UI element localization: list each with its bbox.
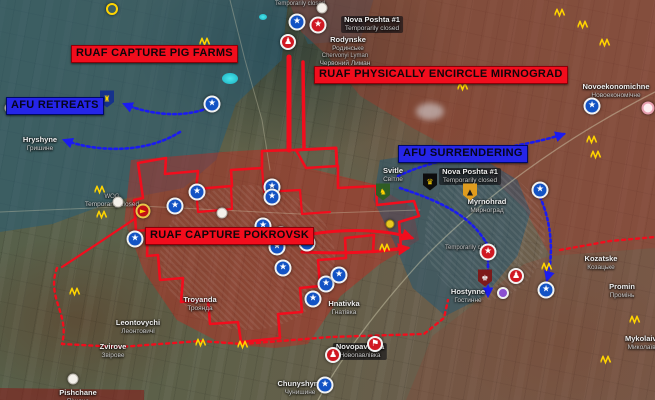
town-name-cyrillic: Гнатівка xyxy=(328,309,359,316)
town-label: Kozatske Козацьке xyxy=(585,255,618,271)
closed-white-marker[interactable] xyxy=(68,374,79,385)
trench-marker xyxy=(238,341,249,350)
town-name: Kozatske xyxy=(585,254,618,263)
star-blue-marker[interactable]: ★ xyxy=(264,189,281,206)
purple-marker[interactable] xyxy=(497,287,509,299)
trench-marker xyxy=(95,186,106,195)
banner-afu-surrendering: AFU SURRENDERING xyxy=(398,145,528,163)
town-name: Pishchane xyxy=(59,388,97,397)
town-label: Nova Poshta #1 Temporarily closed xyxy=(439,168,501,185)
town-name-cyrillic: Родинське xyxy=(330,45,366,52)
town-name: Myrnohrad xyxy=(468,197,507,206)
star-blue-marker[interactable]: ★ xyxy=(167,198,184,215)
walk-red-marker[interactable]: ♟ xyxy=(280,34,296,50)
town-name-cyrillic: Світле xyxy=(383,176,403,183)
town-label: Zvirove Звірове xyxy=(100,343,127,359)
town-label: Mykolaivka Миколаївка xyxy=(625,335,655,351)
hand-red-marker[interactable]: ► xyxy=(136,204,151,219)
closed-white-marker[interactable] xyxy=(113,197,124,208)
pink-ring-marker[interactable] xyxy=(642,102,655,115)
town-name: Nova Poshta #1 xyxy=(344,15,400,24)
town-label: Hryshyne Гришине xyxy=(23,136,57,152)
trench-marker xyxy=(196,339,207,348)
town-label: Troyanda Троянда xyxy=(183,296,216,312)
star-blue-marker[interactable]: ★ xyxy=(189,184,206,201)
banner-afu-retreats: AFU RETREATS xyxy=(6,97,104,115)
walk-red-marker[interactable]: ♟ xyxy=(325,347,341,363)
town-label: Myrnohrad Мирноград xyxy=(468,198,507,214)
star-blue-marker[interactable]: ★ xyxy=(584,98,601,115)
town-label: Hnativka Гнатівка xyxy=(328,300,359,316)
town-name-cyrillic: Леонтовичі xyxy=(116,328,160,335)
town-name-cyrillic: Звірове xyxy=(100,352,127,359)
dot-yellow-marker[interactable] xyxy=(386,220,395,229)
town-label: Leontovychi Леонтовичі xyxy=(116,319,160,335)
town-name: Svitle xyxy=(383,166,403,175)
town-label: Svitle Світле xyxy=(383,167,403,183)
trench-marker xyxy=(630,316,641,325)
town-label: Rodynske Родинське xyxy=(330,36,366,52)
star-blue-marker[interactable]: ★ xyxy=(305,291,322,308)
town-name: Hnativka xyxy=(328,299,359,308)
trench-marker xyxy=(380,244,391,253)
walk-red-marker[interactable]: ♟ xyxy=(508,268,524,284)
trench-marker xyxy=(97,211,108,220)
war-map-canvas[interactable]: RUAF CAPTURE PIG FARMSRUAF PHYSICALLY EN… xyxy=(0,0,655,400)
trench-marker xyxy=(587,136,598,145)
town-name-cyrillic: Промінь xyxy=(609,292,635,299)
star-blue-marker[interactable]: ★ xyxy=(532,182,549,199)
star-blue-marker[interactable]: ★ xyxy=(317,377,334,394)
town-name: Rodynske xyxy=(330,35,366,44)
trench-marker xyxy=(555,9,566,18)
town-name: Hostynne xyxy=(451,287,485,296)
town-label: Pishchane Піщане xyxy=(59,389,97,400)
town-name: Hryshyne xyxy=(23,135,57,144)
town-name-cyrillic: Temporarily closed xyxy=(344,25,400,32)
star-blue-marker[interactable]: ★ xyxy=(538,282,555,299)
town-name-cyrillic: Чунишине xyxy=(277,389,322,396)
town-name-cyrillic: Гостинне xyxy=(451,297,485,304)
banner-encircle-mirnograd: RUAF PHYSICALLY ENCIRCLE MIRNOGRAD xyxy=(314,66,568,84)
town-label: Hostynne Гостинне xyxy=(451,288,485,304)
town-name: Leontovychi xyxy=(116,318,160,327)
town-name: Troyanda xyxy=(183,295,216,304)
town-name-cyrillic: Миколаївка xyxy=(625,344,655,351)
town-name: Mykolaivka xyxy=(625,334,655,343)
star-blue-marker[interactable]: ★ xyxy=(204,96,221,113)
star-red-marker[interactable]: ★ xyxy=(480,244,497,261)
town-label: Promin Промінь xyxy=(609,283,635,299)
closed-white-marker[interactable] xyxy=(317,3,328,14)
town-name-cyrillic: Temporarily closed xyxy=(442,177,498,184)
town-name-cyrillic: Козацьке xyxy=(585,264,618,271)
town-name-cyrillic: Новопавлівка xyxy=(336,352,384,359)
town-name: Promin xyxy=(609,282,635,291)
town-name: Zvirove xyxy=(100,342,127,351)
banner-capture-pokrovsk: RUAF CAPTURE POKROVSK xyxy=(145,227,314,245)
trench-marker xyxy=(600,39,611,48)
star-blue-marker[interactable]: ★ xyxy=(275,260,292,277)
banner-pig-farms: RUAF CAPTURE PIG FARMS xyxy=(71,45,238,63)
star-blue-marker[interactable]: ★ xyxy=(289,14,306,31)
town-name: Novoekonomichne xyxy=(582,82,649,91)
closed-white-marker[interactable] xyxy=(217,208,228,219)
ring-yellow-marker[interactable] xyxy=(106,3,118,15)
trench-marker xyxy=(591,151,602,160)
star-red-marker[interactable]: ★ xyxy=(310,17,327,34)
town-name-cyrillic: Гришине xyxy=(23,145,57,152)
trench-marker xyxy=(578,21,589,30)
trench-marker xyxy=(70,288,81,297)
town-name-cyrillic: Мирноград xyxy=(468,207,507,214)
star-blue-marker[interactable]: ★ xyxy=(331,267,348,284)
town-name: Chervonyi Lyman xyxy=(322,53,368,59)
town-name-cyrillic: Троянда xyxy=(183,305,216,312)
trench-marker xyxy=(458,83,469,92)
flag-red-marker[interactable]: ⚑ xyxy=(367,336,383,352)
trench-marker xyxy=(542,263,553,272)
star-blue-marker[interactable]: ★ xyxy=(127,231,144,248)
trench-marker xyxy=(601,356,612,365)
town-name: Nova Poshta #1 xyxy=(442,167,498,176)
town-label: Nova Poshta #1 Temporarily closed xyxy=(341,16,403,33)
